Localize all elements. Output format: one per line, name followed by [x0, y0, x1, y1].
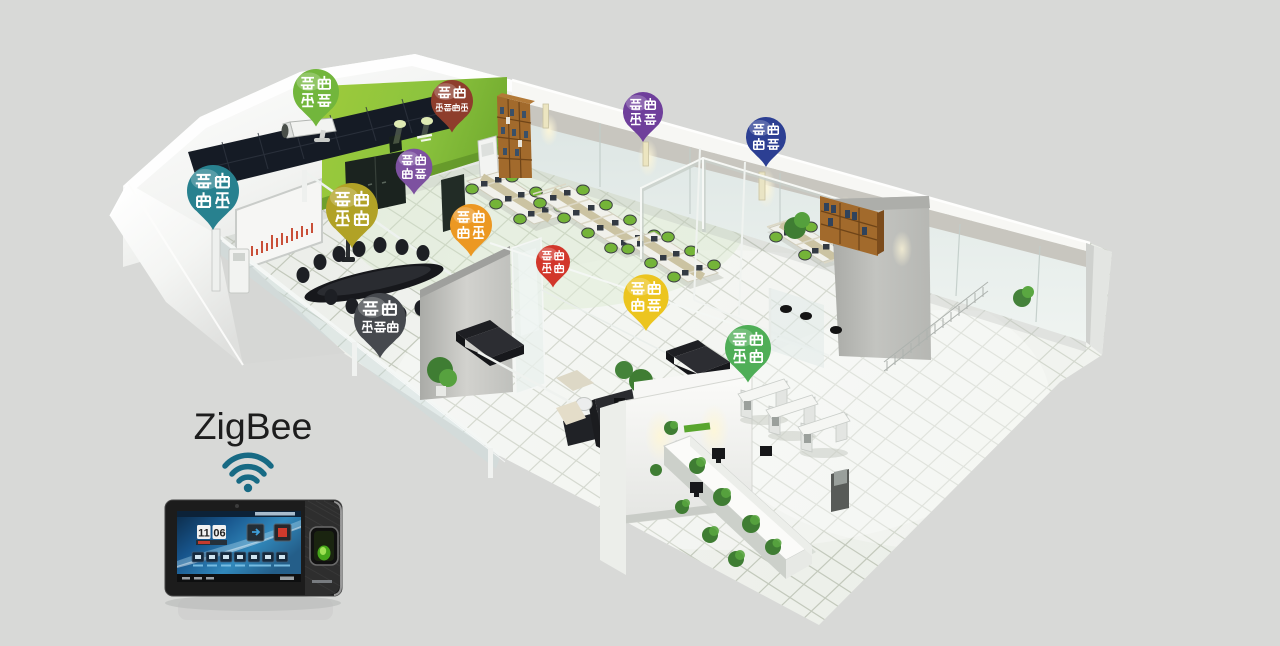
svg-text:06: 06: [213, 528, 225, 540]
svg-text:11: 11: [198, 528, 210, 540]
svg-text:ZigBee: ZigBee: [194, 405, 313, 447]
